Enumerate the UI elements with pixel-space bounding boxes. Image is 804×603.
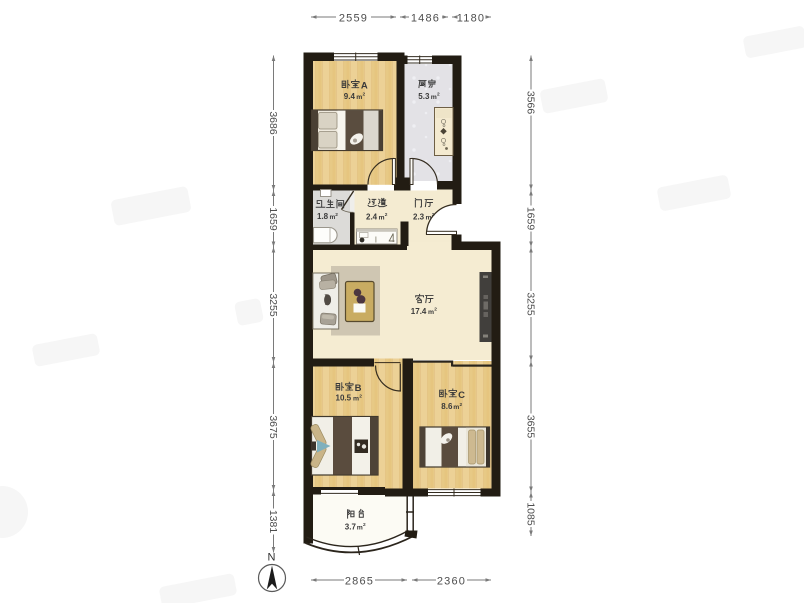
svg-text:1180: 1180	[457, 12, 485, 24]
svg-text:1659: 1659	[524, 207, 536, 231]
svg-text:m: m	[426, 215, 432, 222]
svg-text:2360: 2360	[437, 575, 466, 587]
svg-text:1.8: 1.8	[317, 212, 329, 221]
svg-text:1085: 1085	[524, 502, 536, 526]
svg-text:2.3: 2.3	[413, 213, 425, 222]
svg-text:5.3: 5.3	[418, 92, 430, 101]
svg-text:2: 2	[335, 212, 338, 218]
svg-text:2: 2	[359, 393, 362, 399]
svg-text:m: m	[356, 94, 362, 101]
svg-text:m: m	[353, 396, 359, 403]
svg-text:1659: 1659	[267, 207, 279, 231]
svg-text:m: m	[453, 404, 459, 411]
svg-text:1381: 1381	[267, 510, 279, 534]
svg-text:2: 2	[437, 92, 440, 98]
svg-text:3.7: 3.7	[345, 522, 357, 531]
svg-text:3675: 3675	[267, 415, 279, 439]
svg-text:C: C	[458, 390, 465, 401]
svg-text:3655: 3655	[524, 415, 536, 439]
svg-text:2: 2	[385, 212, 388, 218]
svg-text:3255: 3255	[267, 293, 279, 317]
svg-text:m: m	[431, 94, 437, 101]
svg-text:3255: 3255	[524, 292, 536, 316]
svg-text:2559: 2559	[339, 12, 368, 24]
svg-text:m: m	[428, 309, 434, 316]
svg-text:2: 2	[460, 402, 463, 408]
svg-text:3686: 3686	[267, 111, 279, 135]
svg-text:3566: 3566	[524, 91, 536, 115]
svg-text:8.6: 8.6	[441, 402, 453, 411]
svg-text:m: m	[357, 524, 363, 531]
svg-text:2.4: 2.4	[366, 213, 378, 222]
svg-text:2: 2	[363, 522, 366, 528]
svg-text:10.5: 10.5	[336, 394, 352, 403]
svg-text:A: A	[361, 81, 368, 92]
svg-text:9.4: 9.4	[344, 92, 356, 101]
svg-text:B: B	[355, 383, 362, 394]
svg-text:2: 2	[434, 307, 437, 313]
svg-text:2: 2	[363, 92, 366, 98]
svg-text:17.4: 17.4	[411, 307, 427, 316]
svg-text:m: m	[379, 215, 385, 222]
svg-text:1486: 1486	[411, 12, 440, 24]
svg-text:N: N	[268, 552, 276, 564]
svg-text:2865: 2865	[345, 575, 374, 587]
svg-text:2: 2	[432, 212, 435, 218]
